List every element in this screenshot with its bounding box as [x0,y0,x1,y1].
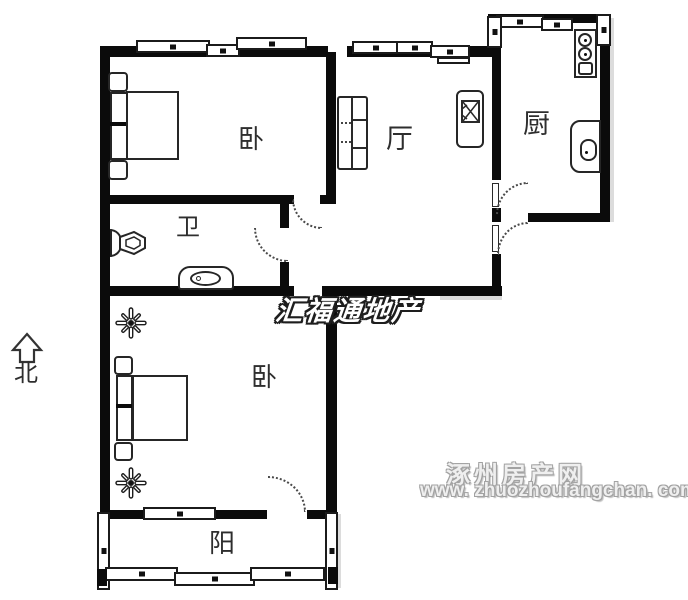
window-tick [220,48,226,53]
window [174,572,255,586]
agency-watermark: 汇福通地产 [274,289,423,328]
bed-icon [132,375,188,441]
floor-plan: 北 卧 厅 厨 卫 卧 阳 汇福通地产 涿州房产网 www. zhuozhouf… [0,0,688,600]
window-tick [412,45,418,50]
wall [528,213,610,222]
toilet-bowl-icon [118,230,148,256]
window [596,14,611,46]
window [352,41,399,54]
wall [320,195,336,204]
window-tick [212,577,218,582]
stove-panel [578,62,593,75]
window-tick [139,572,145,577]
sofa-cushion-seam [341,122,351,124]
vanity-basin [190,271,221,286]
room-label-living: 厅 [386,126,413,153]
door-arc [496,182,528,215]
plant-icon [114,466,148,500]
sofa-seam [351,147,366,149]
wall-shadow [440,296,502,300]
sofa-icon [337,96,368,170]
balcony-corner [97,569,107,586]
window-tick [492,29,497,35]
window-tick [329,548,334,554]
burner-dot [584,53,587,56]
balcony-corner [328,567,338,584]
window [541,18,573,31]
window [396,41,433,54]
wall-shadow [610,18,614,222]
compass-label: 北 [14,362,38,386]
nightstand-icon [108,160,128,180]
room-label-bedroom-2: 卧 [251,364,277,390]
plant-icon [114,306,148,340]
bed-icon [116,375,133,441]
room-label-balcony: 阳 [209,530,235,556]
wall [216,510,267,519]
sofa-seam [351,98,353,168]
sofa-cushion-seam [341,141,351,143]
window [105,567,178,581]
window [236,37,307,50]
window-tick [601,27,606,33]
vanity-drain [196,276,201,281]
window-tick [269,41,275,46]
wall [100,195,294,204]
bed-divider [116,404,133,408]
window-tick [170,44,176,49]
room-label-kitchen: 厨 [523,111,550,138]
tv-icon [458,98,482,126]
wall [100,46,110,518]
room-label-bedroom-1: 卧 [238,126,264,152]
window [487,16,502,48]
bed-icon [126,91,179,160]
burner-dot [584,39,587,42]
window-tick [373,45,379,50]
window-tick [101,548,106,554]
window-tick [285,572,291,577]
door-arc [292,199,322,229]
nightstand-icon [114,442,133,461]
window [250,567,325,581]
nightstand-icon [114,356,133,375]
door-arc [497,222,528,255]
window [143,507,216,520]
window-tick [177,511,183,516]
window-tick [447,49,453,54]
nightstand-icon [108,72,128,92]
window [437,57,470,64]
window [136,40,210,53]
window-tick [554,22,560,27]
wall [326,52,336,204]
room-label-bathroom: 卫 [176,216,200,240]
wall [280,195,289,228]
door-arc [268,476,306,512]
sofa-seam [351,119,366,121]
sink-drain [585,151,588,154]
window [496,15,544,28]
site-url-watermark: www. zhuozhoufangchan. com [420,480,688,502]
window-tick [517,19,523,24]
door-arc [254,228,288,262]
wall [492,254,501,296]
sink-basin [580,139,597,161]
window [206,44,240,57]
